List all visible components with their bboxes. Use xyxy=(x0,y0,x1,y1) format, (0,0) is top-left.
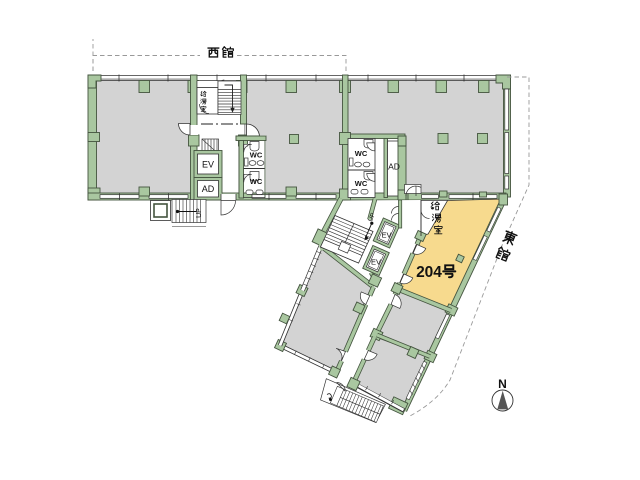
svg-text:UP: UP xyxy=(196,208,203,218)
svg-text:AD: AD xyxy=(388,162,400,172)
svg-text:WC: WC xyxy=(355,149,368,158)
svg-text:204: 204 xyxy=(416,264,442,281)
svg-text:AD: AD xyxy=(202,184,215,194)
svg-text:EV: EV xyxy=(371,258,381,267)
svg-text:WC: WC xyxy=(355,179,368,188)
svg-text:WC: WC xyxy=(250,151,263,160)
svg-text:EV: EV xyxy=(202,160,214,170)
svg-text:EV: EV xyxy=(381,231,391,240)
svg-text:N: N xyxy=(498,377,507,391)
svg-text:WC: WC xyxy=(250,177,263,186)
